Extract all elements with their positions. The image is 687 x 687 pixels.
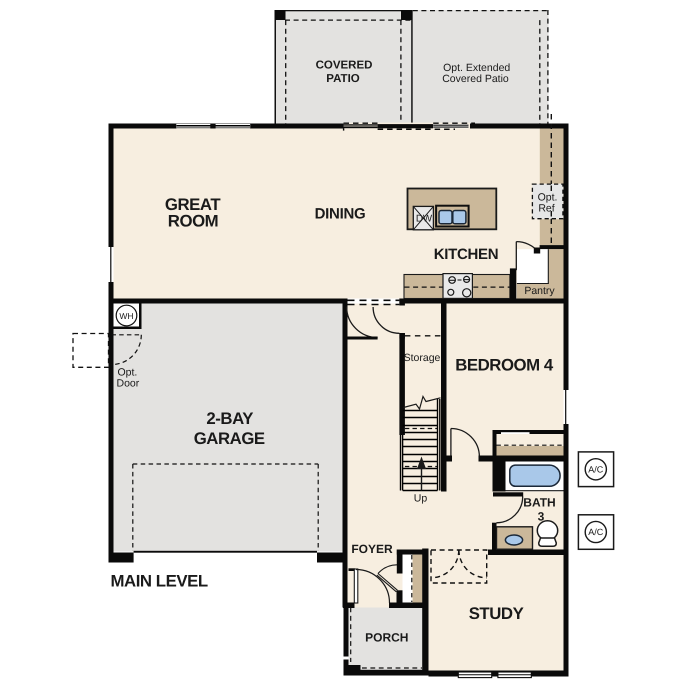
svg-text:COVERED: COVERED [316,60,373,72]
svg-text:Door: Door [117,378,140,390]
svg-text:A/C: A/C [588,465,604,475]
svg-text:ROOM: ROOM [168,211,218,230]
svg-text:GARAGE: GARAGE [194,429,265,448]
svg-text:PATIO: PATIO [326,73,359,85]
svg-text:KITCHEN: KITCHEN [434,246,499,263]
svg-text:DW: DW [416,214,433,225]
svg-text:Pantry: Pantry [524,285,555,297]
svg-text:2-BAY: 2-BAY [206,409,253,428]
svg-text:MAIN LEVEL: MAIN LEVEL [111,572,208,591]
svg-text:STUDY: STUDY [469,604,524,623]
svg-text:BATH: BATH [523,495,555,509]
svg-text:Up: Up [414,493,428,505]
svg-text:BEDROOM 4: BEDROOM 4 [455,356,554,375]
svg-text:DINING: DINING [315,205,366,222]
svg-text:3: 3 [538,510,545,524]
svg-text:A/C: A/C [588,527,604,537]
svg-text:FOYER: FOYER [351,542,393,556]
svg-text:PORCH: PORCH [365,631,408,645]
svg-text:Ref: Ref [538,203,554,215]
svg-text:Covered Patio: Covered Patio [442,73,509,85]
svg-text:Storage: Storage [404,352,441,364]
svg-text:WH: WH [119,311,133,321]
